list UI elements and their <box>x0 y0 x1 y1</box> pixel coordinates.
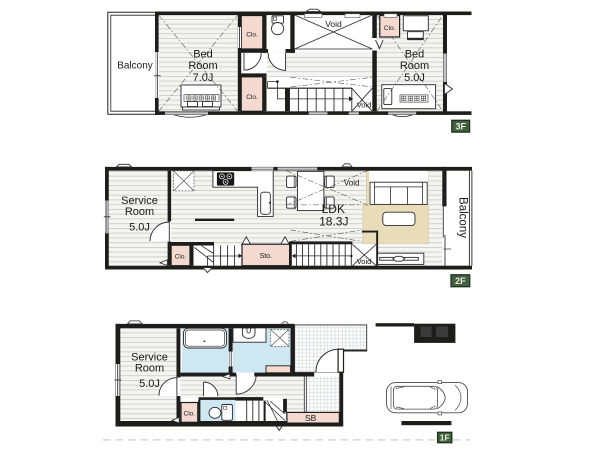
svg-text:Sto.: Sto. <box>260 253 273 260</box>
svg-text:1F: 1F <box>440 433 450 443</box>
svg-text:3F: 3F <box>455 122 466 132</box>
svg-text:Room: Room <box>135 363 164 375</box>
svg-text:Clo.: Clo. <box>175 253 187 260</box>
svg-text:Void: Void <box>325 19 342 29</box>
svg-text:18.3J: 18.3J <box>319 215 348 229</box>
svg-text:Clo.: Clo. <box>184 411 196 418</box>
svg-text:Room: Room <box>125 206 154 218</box>
svg-text:Clo.: Clo. <box>384 25 396 32</box>
svg-text:5.0J: 5.0J <box>139 378 160 390</box>
svg-text:Bed: Bed <box>193 49 213 61</box>
svg-text:2F: 2F <box>455 276 466 286</box>
svg-text:Void: Void <box>344 179 360 188</box>
svg-text:Balcony: Balcony <box>457 197 469 238</box>
svg-text:5.0J: 5.0J <box>129 222 150 234</box>
svg-text:Clo.: Clo. <box>246 32 258 39</box>
svg-text:Void: Void <box>357 100 372 109</box>
svg-text:SB: SB <box>305 413 317 423</box>
svg-text:Clo.: Clo. <box>246 94 258 101</box>
svg-text:Room: Room <box>400 60 429 72</box>
svg-text:Bed: Bed <box>405 49 425 61</box>
svg-text:Room: Room <box>188 60 217 72</box>
svg-text:Void: Void <box>357 257 372 266</box>
svg-text:Balcony: Balcony <box>117 60 153 71</box>
svg-text:7.0J: 7.0J <box>193 72 214 84</box>
svg-text:5.0J: 5.0J <box>404 72 425 84</box>
